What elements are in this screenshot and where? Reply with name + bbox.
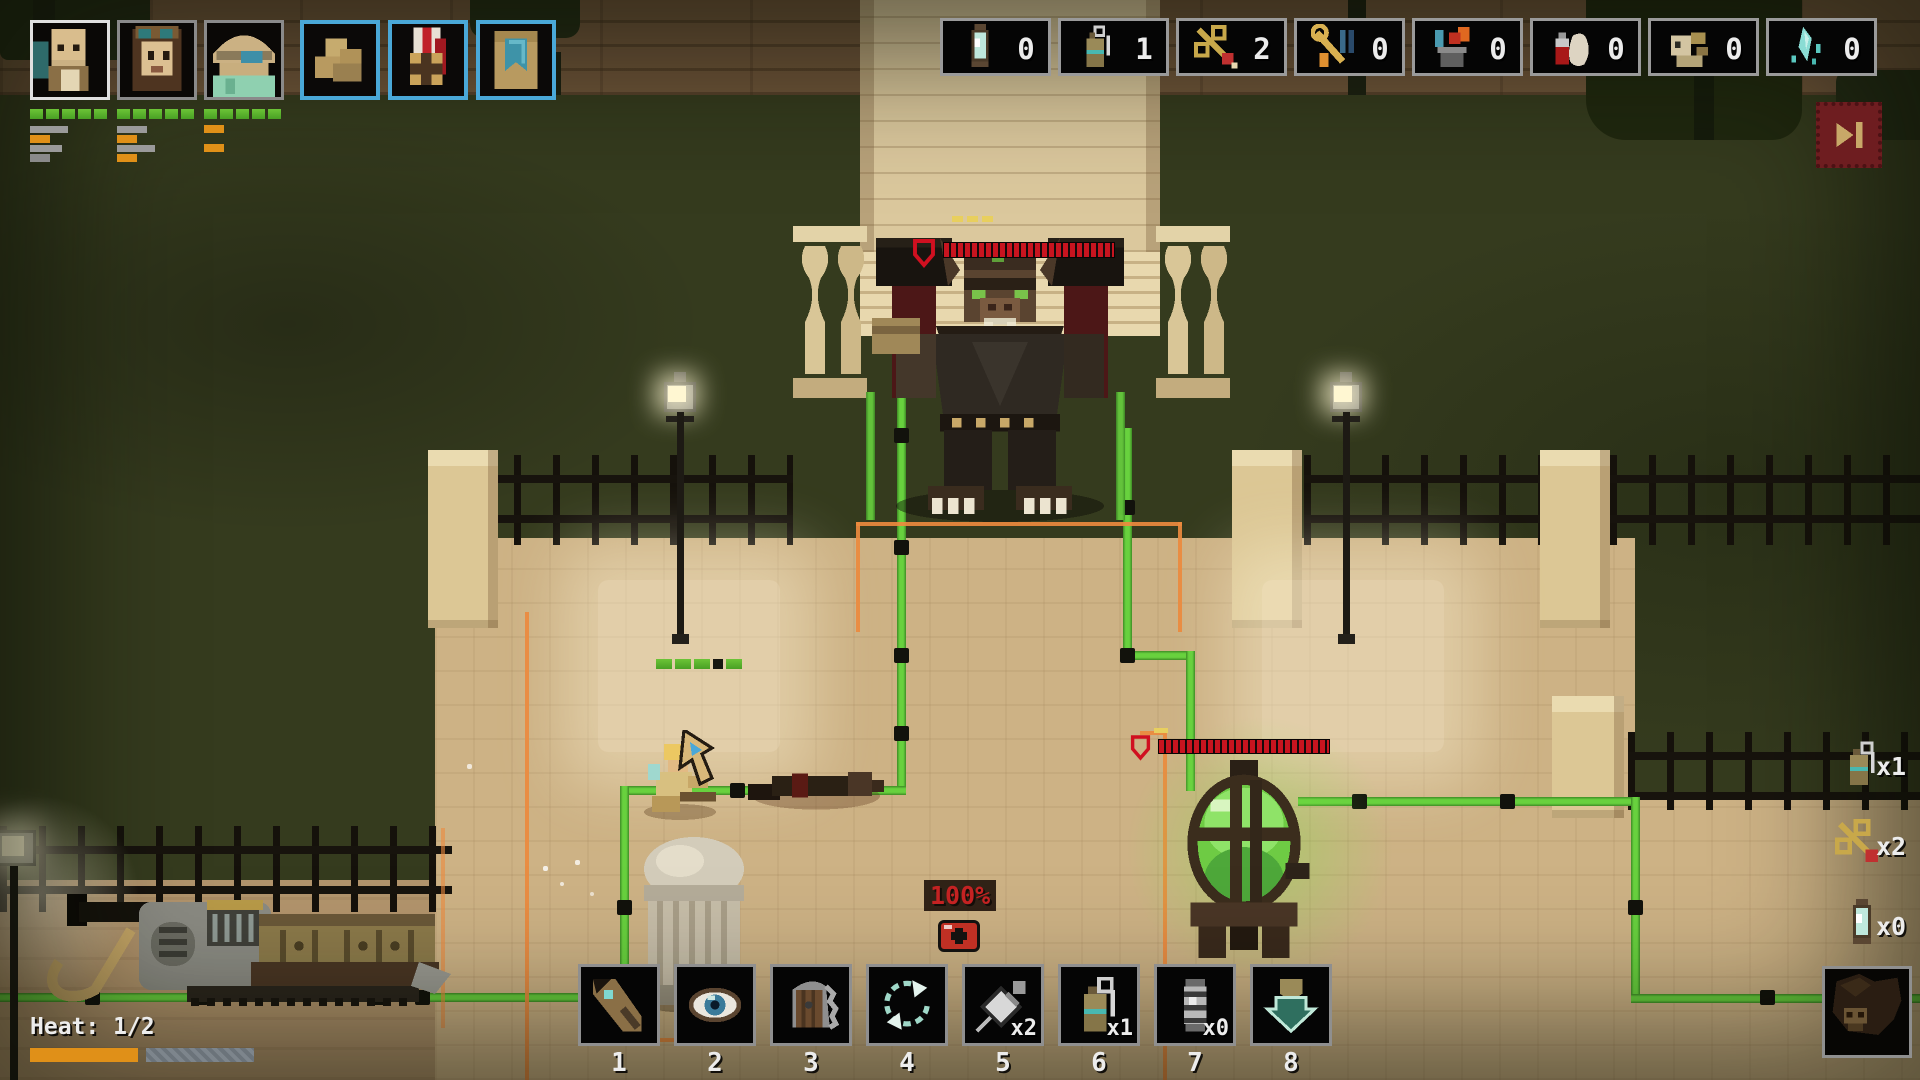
- resource-slot-bones: 0: [1648, 18, 1759, 76]
- path-line: [1178, 522, 1182, 632]
- cable-connector: [1500, 794, 1515, 809]
- shield-icon: [1130, 734, 1151, 761]
- enemy-portrait-box[interactable]: [1822, 966, 1912, 1058]
- path-line: [856, 522, 860, 632]
- portrait-2-face: [120, 23, 194, 97]
- cycle-arrows-icon: [877, 975, 937, 1035]
- cable-connector: [894, 726, 909, 741]
- hotbar-slot-7[interactable]: x0: [1154, 964, 1236, 1046]
- resource-count: 0: [1363, 23, 1397, 75]
- heat-bar-fill: [30, 1048, 138, 1062]
- resource-slot-medicine: 0: [1530, 18, 1641, 76]
- ap-row-1: [30, 128, 54, 166]
- resource-count: 1: [1127, 23, 1161, 75]
- item-slot-banner[interactable]: [476, 20, 556, 100]
- ap-row-2: [117, 128, 141, 166]
- scope-gun-icon: [589, 975, 649, 1035]
- dead-body: [748, 760, 888, 812]
- banner-book-icon: [480, 24, 552, 96]
- hotbar-count: x0: [1203, 1016, 1230, 1041]
- dart-icon: [1193, 24, 1239, 70]
- grenade-icon: [1075, 24, 1121, 70]
- tools-icon: [1311, 24, 1357, 70]
- resource-slot-tools: 0: [1294, 18, 1405, 76]
- hotbar-count: x2: [1011, 1016, 1038, 1041]
- beast-face-icon: [1825, 969, 1909, 1055]
- resource-count: 0: [1481, 23, 1515, 75]
- armored-door-icon: [781, 975, 841, 1035]
- descend-arrow-icon: [1261, 975, 1321, 1035]
- heat-meter: Heat: 1/2: [30, 1014, 155, 1040]
- hotbar-key-4: 4: [866, 1048, 948, 1078]
- stone-pillar: [1232, 450, 1302, 628]
- medicine-icon: [1547, 24, 1593, 70]
- hotbar-key-6: 6: [1058, 1048, 1140, 1078]
- heat-bar-empty: [146, 1048, 254, 1062]
- balustrade-right: [1156, 226, 1230, 398]
- hotbar-slot-2[interactable]: [674, 964, 756, 1046]
- lamp-health-bar: [656, 654, 745, 673]
- hotbar-slot-5[interactable]: x2: [962, 964, 1044, 1046]
- cable-connector: [894, 648, 909, 663]
- cable-connector: [1120, 648, 1135, 663]
- slime-drip: [1116, 392, 1125, 520]
- hotbar-key-5: 5: [962, 1048, 1044, 1078]
- skip-forward-icon: [1834, 118, 1868, 152]
- hotbar-slot-4[interactable]: [866, 964, 948, 1046]
- lantern-health-bar: [1158, 739, 1330, 754]
- lantern-icon: [957, 24, 1003, 70]
- stone-pillar: [428, 450, 498, 628]
- armor-pip: [982, 216, 993, 222]
- objective-lantern[interactable]: [1178, 760, 1310, 958]
- tank-vehicle: [18, 874, 468, 1018]
- cable-connector: [1352, 794, 1367, 809]
- boss-health-bar: [943, 242, 1115, 258]
- ap-row-3: [204, 118, 228, 156]
- iron-fence: [1610, 455, 1920, 545]
- hit-chance-value: 100%: [930, 881, 990, 910]
- item-slot-rocks[interactable]: [300, 20, 380, 100]
- balustrade-left: [793, 226, 867, 398]
- medal-icon: [392, 24, 464, 96]
- resource-slot-cooking: 0: [1412, 18, 1523, 76]
- shield-icon: [912, 238, 936, 268]
- iron-fence: [1304, 455, 1540, 545]
- cable-connector: [1628, 900, 1643, 915]
- path-line: [525, 612, 529, 1080]
- quick-item-count: x2: [1876, 832, 1906, 861]
- hotbar-slot-6[interactable]: x1: [1058, 964, 1140, 1046]
- mouse-cursor: [676, 730, 718, 788]
- resource-count: 0: [1599, 23, 1633, 75]
- armor-pip: [967, 216, 978, 222]
- portrait-3[interactable]: [204, 20, 284, 100]
- stone-pillar: [1540, 450, 1610, 628]
- resource-slot-crystal: 0: [1766, 18, 1877, 76]
- medkit-icon: [938, 920, 980, 952]
- cable-connector: [1760, 990, 1775, 1005]
- cooking-icon: [1429, 24, 1475, 70]
- boss-beast[interactable]: [872, 222, 1128, 526]
- cable-connector: [730, 783, 745, 798]
- hotbar-slot-8[interactable]: [1250, 964, 1332, 1046]
- hotbar-key-8: 8: [1250, 1048, 1332, 1078]
- quick-item-count: x0: [1876, 912, 1906, 941]
- bones-icon: [1665, 24, 1711, 70]
- portrait-1-face: [33, 23, 107, 97]
- hotbar-key-7: 7: [1154, 1048, 1236, 1078]
- quick-item-count: x1: [1876, 752, 1906, 781]
- heat-label: Heat: 1/2: [30, 1014, 155, 1040]
- game-viewport: 0 1 2: [0, 0, 1920, 1080]
- hotbar-slot-3[interactable]: [770, 964, 852, 1046]
- resource-count: 0: [1835, 23, 1869, 75]
- power-cable: [1298, 797, 1640, 806]
- hit-chance-badge: 100%: [924, 880, 996, 911]
- resource-slot-lantern: 0: [940, 18, 1051, 76]
- portrait-3-face: [207, 23, 281, 97]
- cable-connector: [894, 540, 909, 555]
- hotbar-key-3: 3: [770, 1048, 852, 1078]
- cable-connector: [617, 900, 632, 915]
- skip-turn-button[interactable]: [1816, 102, 1882, 168]
- armor-pip: [952, 216, 963, 222]
- resource-slot-dart: 2: [1176, 18, 1287, 76]
- resource-count: 2: [1245, 23, 1279, 75]
- hotbar-slot-1[interactable]: [578, 964, 660, 1046]
- hotbar-key-1: 1: [578, 1048, 660, 1078]
- portrait-2[interactable]: [117, 20, 197, 100]
- portrait-1[interactable]: [30, 20, 110, 100]
- resource-count: 0: [1009, 23, 1043, 75]
- slime-drip: [866, 392, 875, 520]
- hotbar-key-2: 2: [674, 1048, 756, 1078]
- resource-count: 0: [1717, 23, 1751, 75]
- overwatch-eye-icon: [685, 975, 745, 1035]
- rock-pile-icon: [304, 24, 376, 96]
- item-slot-medal[interactable]: [388, 20, 468, 100]
- resource-slot-grenade: 1: [1058, 18, 1169, 76]
- crystal-icon: [1783, 24, 1829, 70]
- armor-pip: [1154, 728, 1168, 733]
- hotbar-count: x1: [1107, 1016, 1134, 1041]
